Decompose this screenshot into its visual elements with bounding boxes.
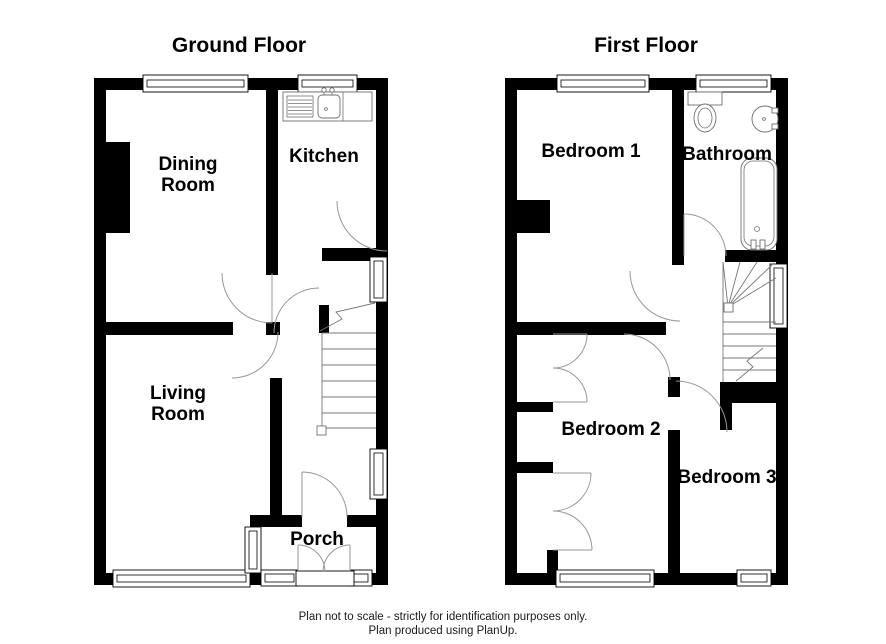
ground-floor-title: Ground Floor <box>172 34 306 57</box>
floor-plan-page: Ground Floor <box>0 0 886 644</box>
bathroom-label: Bathroom <box>682 144 772 165</box>
bedroom2-label: Bedroom 2 <box>561 419 660 440</box>
first-floor-plan: First Floor <box>505 34 788 587</box>
kitchen-sink-icon <box>283 87 372 121</box>
bedroom1-door-swing-icon <box>630 271 680 321</box>
bedroom1-window <box>557 75 649 92</box>
bedroom1-label: Bedroom 1 <box>541 141 641 162</box>
front-door-swing-icon <box>302 472 347 517</box>
living-room-label-2: Room <box>151 404 205 425</box>
staircase-icon <box>723 262 776 382</box>
footer-line-1: Plan not to scale - strictly for identif… <box>299 611 588 623</box>
toilet-icon <box>688 92 722 132</box>
bedroom3-window <box>737 570 771 586</box>
bedroom3-label: Bedroom 3 <box>677 467 776 488</box>
dining-room-window <box>143 75 248 92</box>
porch-label: Porch <box>290 529 344 550</box>
floor-plan-canvas: Ground Floor <box>0 0 886 644</box>
wash-basin-icon <box>752 106 778 132</box>
bedroom2-cupboard-doors-icon <box>553 334 592 550</box>
porch-front-window-left <box>261 570 298 586</box>
landing-window <box>770 264 787 328</box>
stairs-door-swing-icon <box>274 288 319 333</box>
living-room-window <box>113 570 250 587</box>
hall-side-window <box>370 449 387 499</box>
porch-double-door-swing-icon <box>296 545 354 586</box>
stairs-side-window <box>370 257 387 302</box>
dining-room-door-swing-icon <box>222 273 272 323</box>
living-room-label-1: Living <box>150 383 206 404</box>
bathroom-door-swing-icon <box>684 214 726 256</box>
footer-line-2: Plan produced using PlanUp. <box>369 625 518 637</box>
living-room-door-swing-icon <box>232 332 278 378</box>
bedroom2-door-swing-icon <box>624 334 670 380</box>
ground-floor-plan: Ground Floor <box>94 34 388 587</box>
kitchen-window <box>298 75 357 92</box>
bathtub-icon <box>741 158 777 250</box>
footer-disclaimer: Plan not to scale - strictly for identif… <box>299 611 588 637</box>
first-floor-title: First Floor <box>594 34 698 57</box>
bedroom3-door-swing-icon <box>676 381 727 432</box>
porch-side-window <box>245 527 261 573</box>
bedroom2-window <box>556 570 654 587</box>
kitchen-label: Kitchen <box>289 146 359 167</box>
chimney-breast-icon <box>517 200 550 233</box>
dining-room-label-2: Room <box>161 175 215 196</box>
bathroom-window <box>696 75 771 92</box>
dining-room-label-1: Dining <box>158 154 217 175</box>
chimney-breast-icon <box>106 142 130 233</box>
